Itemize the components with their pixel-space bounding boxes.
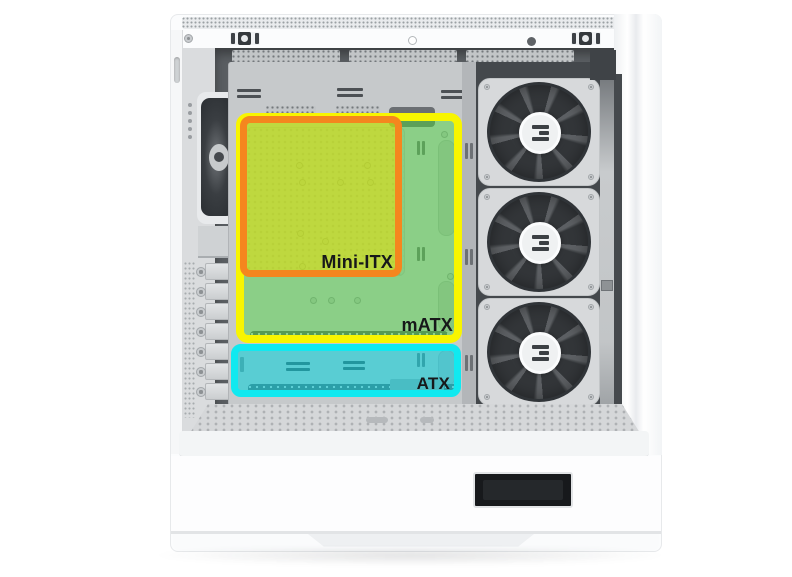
fan-screw-icon [484, 194, 490, 200]
fan-screw-icon [484, 284, 490, 290]
top-hole [408, 36, 417, 45]
tray-clip [237, 89, 261, 98]
case-shadow [150, 548, 670, 566]
tray-clip [337, 88, 363, 97]
top-button-dot [527, 37, 536, 46]
fan-screw-icon [588, 394, 594, 400]
pci-thumbscrew-icon [196, 307, 206, 317]
rear-handle-slot [174, 57, 180, 83]
front-fan-stack [478, 78, 600, 408]
rear-vent-dot [188, 135, 192, 139]
rear-vent-dot [188, 119, 192, 123]
shroud-slot [366, 417, 388, 423]
fan-logo-z-icon [532, 357, 549, 361]
fan-hub [519, 112, 561, 154]
top-vent-mesh [182, 17, 644, 29]
rear-vent-dot [188, 103, 192, 107]
zone-atx [231, 344, 461, 397]
badge-inner [483, 480, 563, 500]
rear-vent-dot [188, 111, 192, 115]
skirt-recess [308, 534, 534, 548]
fan-screw-icon [484, 394, 490, 400]
fan-logo-z-icon [532, 125, 549, 129]
rear-fan-hub [209, 144, 229, 171]
fan-screw-icon [484, 304, 490, 310]
shroud-slot [420, 417, 434, 423]
pci-thumbscrew-icon [196, 267, 206, 277]
zone-mini-itx [240, 116, 402, 277]
front-fan [478, 78, 600, 186]
rail-tab [465, 143, 473, 159]
fan-hub [519, 332, 561, 374]
fan-screw-icon [588, 304, 594, 310]
rear-vent-dot [188, 127, 192, 131]
front-fan [478, 298, 600, 406]
fan-logo-z-icon [539, 131, 549, 135]
top-radiator-mesh-1 [232, 50, 340, 62]
top-thumbscrew [184, 34, 193, 43]
fan-hub [519, 222, 561, 264]
pci-thumbscrew-icon [196, 287, 206, 297]
fan-screw-icon [588, 194, 594, 200]
top-latch-clip-left [230, 32, 260, 45]
front-fan [478, 188, 600, 296]
top-radiator-mesh-3 [466, 50, 574, 62]
top-latch-clip-right [571, 32, 601, 45]
rail-tab [465, 355, 473, 371]
fan-screw-icon [484, 84, 490, 90]
front-pillar-channel [614, 74, 622, 430]
fan-logo-z-icon [532, 235, 549, 239]
psu-shroud-lip [179, 431, 649, 457]
pc-case-compatibility-diagram: Mini-ITX mATX ATX [0, 0, 792, 577]
fan-screw-icon [484, 174, 490, 180]
top-radiator-mesh-2 [349, 50, 457, 62]
psu-shroud-vent [190, 404, 640, 433]
rail-tab [465, 249, 473, 265]
rear-edge-strip [171, 30, 183, 454]
base-panel [171, 456, 661, 532]
fan-screw-icon [588, 84, 594, 90]
pci-thumbscrew-icon [196, 327, 206, 337]
pci-thumbscrew-icon [196, 367, 206, 377]
fan-logo-z-icon [539, 351, 549, 355]
fan-mount-rail [600, 70, 614, 410]
pci-thumbscrew-icon [196, 347, 206, 357]
fan-logo-z-icon [539, 241, 549, 245]
front-badge-display [473, 472, 573, 508]
fan-connector [601, 280, 613, 291]
pci-thumbscrew-icon [196, 387, 206, 397]
fan-logo-z-icon [532, 345, 549, 349]
rear-panel-vent-field [184, 262, 196, 418]
fan-screw-icon [588, 284, 594, 290]
fan-screw-icon [588, 174, 594, 180]
top-corner-bracket [590, 50, 616, 80]
fan-logo-z-icon [532, 247, 549, 251]
fan-logo-z-icon [532, 137, 549, 141]
